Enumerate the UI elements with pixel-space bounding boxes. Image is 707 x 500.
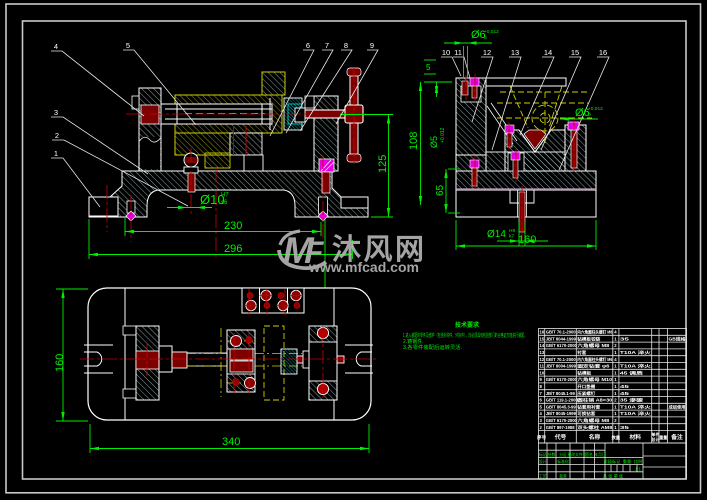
svg-text:5: 5	[126, 41, 130, 50]
svg-text:成组使用: 成组使用	[669, 403, 686, 410]
svg-text:代号: 代号	[554, 433, 567, 441]
svg-text:0: 0	[588, 112, 591, 118]
svg-text:13: 13	[540, 350, 545, 355]
svg-text:标准化: 标准化	[557, 459, 569, 464]
svg-text:GB/T 6170-2000: GB/T 6170-2000	[546, 377, 578, 382]
svg-text:125: 125	[377, 155, 389, 173]
svg-text:阶段标记: 阶段标记	[604, 458, 622, 465]
svg-text:s6: s6	[221, 200, 228, 206]
svg-text:内六角圆柱头螺钉 M6: 内六角圆柱头螺钉 M6	[577, 356, 613, 363]
svg-text:12: 12	[540, 357, 545, 362]
svg-text:3.各零件装配后运转灵活.: 3.各零件装配后运转灵活.	[403, 344, 462, 351]
svg-text:6: 6	[306, 41, 310, 50]
svg-text:Ø5: Ø5	[429, 136, 439, 148]
svg-text:钻模板铰链: 钻模板铰链	[577, 335, 601, 342]
svg-text:重量: 重量	[659, 434, 667, 440]
svg-text:7: 7	[325, 41, 329, 50]
svg-text:16: 16	[599, 48, 607, 57]
svg-text:14: 14	[544, 48, 552, 57]
svg-text:45 调质: 45 调质	[620, 369, 644, 376]
svg-text:开口垫圈: 开口垫圈	[577, 383, 595, 390]
svg-text:10: 10	[540, 370, 545, 375]
svg-text:材料: 材料	[628, 433, 641, 441]
svg-text:GB/T 6170-2000: GB/T 6170-2000	[546, 418, 578, 423]
svg-text:GB/T 897-1988: GB/T 897-1988	[546, 425, 576, 430]
svg-text:比例: 比例	[634, 458, 642, 465]
svg-text:5: 5	[426, 63, 431, 72]
svg-text:钻模板: 钻模板	[577, 369, 592, 376]
svg-text:钻套用衬套: 钻套用衬套	[577, 403, 601, 410]
svg-text:H7: H7	[221, 193, 229, 199]
svg-text:六角螺母 M10: 六角螺母 M10	[577, 376, 613, 383]
svg-text:六角螺母 M8: 六角螺母 M8	[577, 342, 610, 349]
svg-text:10: 10	[442, 48, 450, 57]
svg-text:14: 14	[540, 343, 545, 348]
svg-text:16: 16	[540, 330, 545, 335]
svg-text:共 张 第 张: 共 张 第 张	[603, 473, 624, 480]
svg-text:GB/T 8045.3-99: GB/T 8045.3-99	[546, 404, 577, 409]
svg-text:11: 11	[454, 48, 462, 57]
svg-text:序号: 序号	[537, 434, 547, 441]
svg-text:JB/T 8045.1-99: JB/T 8045.1-99	[546, 391, 576, 396]
svg-text:重量: 重量	[623, 458, 631, 465]
svg-text:12: 12	[483, 48, 491, 57]
svg-text:GB规格: GB规格	[669, 335, 687, 342]
svg-text:340: 340	[222, 436, 240, 448]
svg-text:GB/T 70.1-2000: GB/T 70.1-2000	[546, 357, 577, 362]
svg-text:T10A 淬火: T10A 淬火	[620, 410, 652, 417]
svg-text:1: 1	[54, 149, 58, 158]
svg-text:双头螺柱 AM8: 双头螺柱 AM8	[577, 424, 613, 431]
svg-text:www.mfcad.com: www.mfcad.com	[308, 259, 419, 275]
svg-text:0: 0	[484, 35, 487, 41]
svg-text:标记: 标记	[539, 452, 547, 457]
svg-text:备注: 备注	[670, 433, 683, 441]
svg-text:45: 45	[620, 384, 630, 389]
svg-text:JB/T 8045-1999: JB/T 8045-1999	[546, 411, 577, 416]
svg-text:T10A 淬火: T10A 淬火	[620, 349, 652, 356]
svg-text:296: 296	[224, 243, 242, 255]
svg-text:GB/T 6170-2000: GB/T 6170-2000	[546, 343, 578, 348]
svg-text:内六角圆柱头螺钉 M8: 内六角圆柱头螺钉 M8	[577, 329, 613, 336]
svg-text:工艺: 工艺	[539, 474, 547, 479]
svg-text:设计: 设计	[539, 459, 547, 464]
svg-text:可换钻套: 可换钻套	[577, 410, 596, 417]
svg-text:技术要求: 技术要求	[455, 321, 480, 329]
svg-text:JB/T 8044-1999: JB/T 8044-1999	[546, 336, 577, 341]
svg-text:k7: k7	[509, 234, 514, 240]
svg-text:签名: 签名	[585, 452, 593, 457]
svg-text:压紧螺钉: 压紧螺钉	[577, 390, 596, 397]
svg-text:分区: 分区	[559, 452, 567, 457]
svg-text:圆柱销 A8×30: 圆柱销 A8×30	[577, 397, 613, 404]
svg-text:15: 15	[571, 48, 579, 57]
svg-text:数量: 数量	[612, 434, 621, 441]
svg-text:2.铸钢件.: 2.铸钢件.	[403, 338, 424, 345]
svg-text:T10A 淬火: T10A 淬火	[620, 403, 652, 410]
svg-text:T10A 淬火: T10A 淬火	[620, 363, 652, 370]
svg-text:11: 11	[540, 364, 545, 369]
svg-text:35: 35	[620, 425, 630, 430]
svg-text:Ø14: Ø14	[487, 229, 506, 240]
svg-text:2: 2	[55, 131, 59, 140]
svg-text:35 渗碳: 35 渗碳	[620, 397, 644, 404]
svg-text:处数: 处数	[548, 452, 556, 457]
svg-text:名称: 名称	[589, 433, 601, 441]
svg-text:+0.012: +0.012	[440, 127, 446, 143]
svg-text:4: 4	[54, 42, 58, 51]
svg-text:H8: H8	[509, 228, 515, 234]
svg-text:更改文件号: 更改文件号	[568, 452, 587, 457]
svg-text:1:1: 1:1	[635, 467, 641, 472]
svg-text:衬套: 衬套	[577, 349, 587, 356]
svg-text:65: 65	[435, 184, 446, 196]
svg-text:GB/T 70.1-2000: GB/T 70.1-2000	[546, 330, 577, 335]
svg-text:230: 230	[224, 220, 242, 232]
svg-text:13: 13	[511, 48, 519, 57]
svg-text:批准: 批准	[559, 474, 567, 479]
svg-text:六角螺母 M8: 六角螺母 M8	[577, 417, 610, 424]
svg-text:9: 9	[370, 41, 374, 50]
svg-text:JB/T 8004-1999: JB/T 8004-1999	[546, 364, 577, 369]
svg-text:35: 35	[620, 336, 630, 341]
svg-text:45: 45	[620, 391, 630, 396]
svg-text:GB/T 119.1-2000: GB/T 119.1-2000	[546, 398, 579, 403]
svg-text:年月日: 年月日	[594, 452, 606, 457]
svg-text:总计: 总计	[651, 436, 659, 442]
svg-text:160: 160	[518, 234, 536, 246]
svg-text:108: 108	[408, 132, 420, 150]
svg-text:3: 3	[54, 108, 58, 117]
svg-text:固定钻套 φ6: 固定钻套 φ6	[577, 363, 610, 370]
svg-text:1.进入装配的零件及部件（包括外购件、外协件），均必须具有检: 1.进入装配的零件及部件（包括外购件、外协件），均必须具有检验部门的合格证方能进…	[403, 332, 527, 339]
svg-text:+0.012: +0.012	[588, 106, 603, 112]
svg-text:8: 8	[344, 41, 348, 50]
svg-text:15: 15	[540, 336, 545, 341]
svg-text:160: 160	[54, 354, 66, 372]
svg-text:+0.012: +0.012	[484, 29, 499, 35]
